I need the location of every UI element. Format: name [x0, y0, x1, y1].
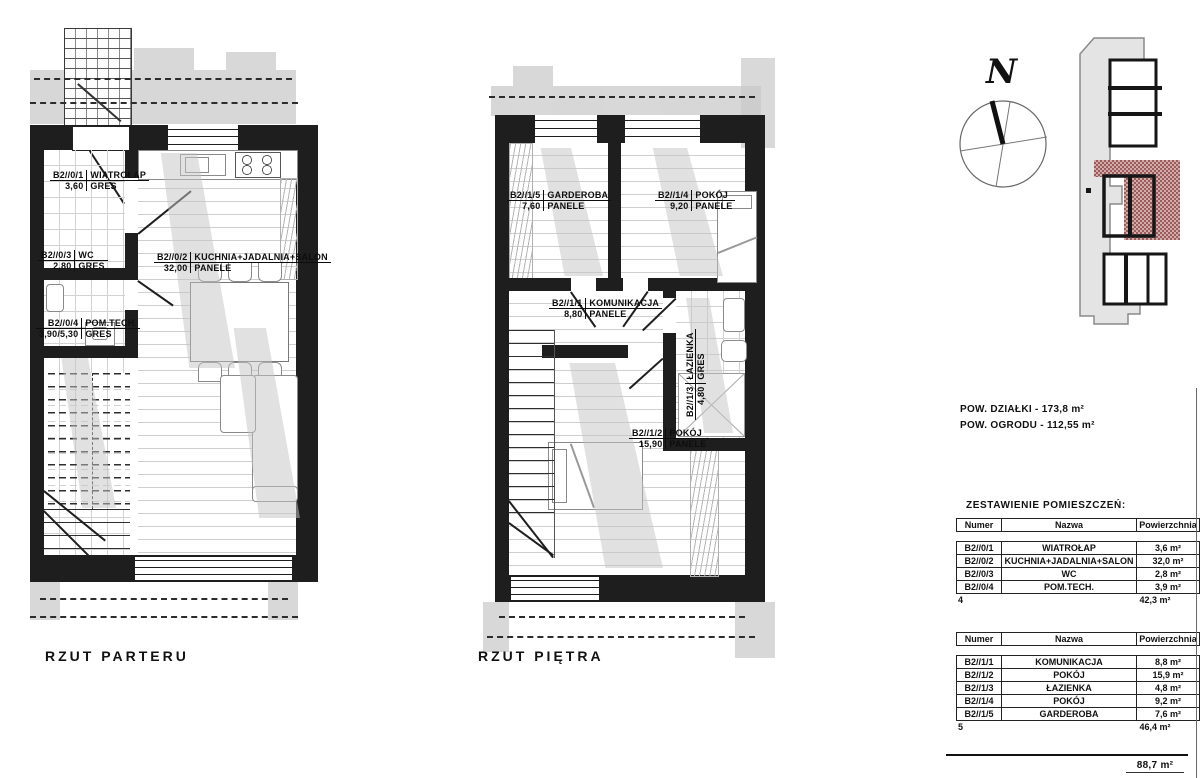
- interior-wall: [509, 278, 571, 291]
- shadow-overlay: [735, 602, 775, 658]
- stove: [235, 152, 281, 178]
- room-label: B2//1/1KOMUNIKACJA 8,80PANELE: [549, 298, 662, 319]
- stairs-rail-line: [554, 330, 555, 558]
- plot-area-text: POW. DZIAŁKI - 173,8 m²: [960, 404, 1084, 415]
- first-floor-plan: B2//1/5GARDEROBA 7,60PANELE B2//1/4POKÓJ…: [483, 58, 775, 618]
- table-row: B2//1/3ŁAZIENKA4,8 m²: [957, 682, 1200, 695]
- roof-dashed-line: [30, 102, 298, 104]
- terrace-dashed-line: [487, 636, 755, 638]
- subtotal-row: 4 42,3 m²: [956, 595, 1184, 605]
- table-row: B2//1/5GARDEROBA7,6 m²: [957, 708, 1200, 721]
- interior-wall: [596, 278, 623, 291]
- washbasin: [723, 298, 745, 332]
- room-schedule-table-ground: Numer Nazwa Powierzchnia B2//0/1WIATROŁA…: [956, 518, 1200, 605]
- exterior-wall: [30, 125, 44, 582]
- window: [535, 115, 597, 143]
- table-body: B2//1/1KOMUNIKACJA8,8 m² B2//1/2POKÓJ15,…: [956, 655, 1200, 721]
- site-plan: [1066, 18, 1200, 333]
- shadow-overlay: [603, 88, 659, 116]
- table-header-cell: Nazwa: [1002, 519, 1137, 532]
- table-row: B2//1/1KOMUNIKACJA8,8 m²: [957, 656, 1200, 669]
- room-label: B2//1/2POKÓJ 15,90PANELE: [629, 428, 709, 449]
- shadow-overlay: [513, 66, 553, 116]
- shadow-overlay: [483, 602, 509, 652]
- site-building: [1108, 60, 1162, 146]
- grand-total-rule: [946, 754, 1188, 756]
- site-building: [1104, 254, 1166, 304]
- site-highlight-hatch: [1124, 160, 1180, 240]
- stairs: [509, 330, 554, 522]
- compass-needle: [992, 101, 1003, 144]
- room-label: B2//0/3WC 2,80GRES: [38, 250, 108, 271]
- schedule-heading: ZESTAWIENIE POMIESZCZEŃ:: [966, 500, 1126, 511]
- table-header: Numer Nazwa Powierzchnia: [956, 632, 1200, 646]
- room-label: B2//1/5GARDEROBA 7,60PANELE: [507, 190, 611, 211]
- table-row: B2//0/1WIATROŁAP3,6 m²: [957, 542, 1200, 555]
- table-header-cell: Nazwa: [1002, 633, 1137, 646]
- drawing-sheet: B2//0/1WIATROŁAP 3,60GRES B2//0/3WC 2,80…: [0, 0, 1200, 778]
- stove-burners: [236, 153, 280, 177]
- table-row: B2//1/4POKÓJ9,2 m²: [957, 695, 1200, 708]
- shadow-overlay: [268, 582, 298, 620]
- subtotal-row: 5 46,4 m²: [956, 722, 1184, 732]
- ground-floor-plan: B2//0/1WIATROŁAP 3,60GRES B2//0/3WC 2,80…: [30, 28, 318, 620]
- exterior-wall: [296, 125, 318, 582]
- table-row: B2//0/2KUCHNIA+JADALNIA+SALON32,0 m²: [957, 555, 1200, 568]
- interior-wall: [44, 346, 130, 358]
- table-row: B2//1/2POKÓJ15,9 m²: [957, 669, 1200, 682]
- entry-door: [72, 126, 130, 151]
- plan-title: RZUT PIĘTRA: [478, 648, 604, 664]
- grand-total: 88,7 m²: [1126, 760, 1184, 773]
- north-label: N: [986, 52, 1017, 92]
- garden-area-text: POW. OGRODU - 112,55 m²: [960, 420, 1095, 431]
- table-body: B2//0/1WIATROŁAP3,6 m² B2//0/2KUCHNIA+JA…: [956, 541, 1200, 594]
- room-label: B2//1/4POKÓJ 9,20PANELE: [655, 190, 735, 211]
- table-row: B2//0/3WC2,8 m²: [957, 568, 1200, 581]
- roof-dashed-line: [489, 96, 755, 98]
- chimney: [64, 28, 132, 140]
- shadow-overlay: [30, 582, 60, 620]
- wardrobe-hatch: [509, 143, 533, 280]
- table-header-cell: Powierzchnia: [1137, 633, 1200, 646]
- window: [625, 115, 700, 143]
- room-label: B2//0/1WIATROŁAP 3,60GRES: [50, 170, 149, 191]
- table-header-cell: Numer: [957, 633, 1002, 646]
- interior-wall: [663, 291, 676, 298]
- plan-title: RZUT PARTERU: [45, 648, 189, 664]
- shadow-overlay: [226, 52, 276, 74]
- room-label: B2//0/4POM.TECH. 3,90/5,30GRES: [36, 318, 140, 339]
- sheet-edge-line: [1196, 388, 1197, 778]
- exterior-wall: [495, 115, 509, 602]
- compass: [957, 96, 1049, 190]
- interior-wall: [125, 233, 138, 280]
- toilet: [46, 284, 64, 312]
- wardrobe-hatch: [690, 448, 719, 577]
- terrace-dashed-line: [30, 616, 298, 618]
- roof-dashed-line: [34, 78, 292, 80]
- room-label: B2//1/3ŁAZIENKA 4,80GRES: [685, 329, 706, 420]
- bed-fold-line: [718, 236, 758, 253]
- table-header: Numer Nazwa Powierzchnia: [956, 518, 1200, 532]
- exterior-wall: [745, 115, 765, 602]
- table-row: B2//0/4POM.TECH.3,9 m²: [957, 581, 1200, 594]
- table-header-cell: Powierzchnia: [1137, 519, 1200, 532]
- toilet: [721, 340, 747, 362]
- window: [168, 125, 238, 150]
- room-label: B2//0/2KUCHNIA+JADALNIA+SALON 32,00PANEL…: [154, 252, 331, 273]
- room-schedule-table-first: Numer Nazwa Powierzchnia B2//1/1KOMUNIKA…: [956, 632, 1200, 732]
- shadow-overlay: [134, 48, 194, 74]
- interior-wall: [663, 333, 676, 438]
- terrace-window: [135, 557, 292, 580]
- window: [511, 577, 599, 600]
- table-header-cell: Numer: [957, 519, 1002, 532]
- terrace-dashed-line: [499, 616, 745, 618]
- terrace-dashed-line: [40, 598, 288, 600]
- stairs: [44, 509, 130, 555]
